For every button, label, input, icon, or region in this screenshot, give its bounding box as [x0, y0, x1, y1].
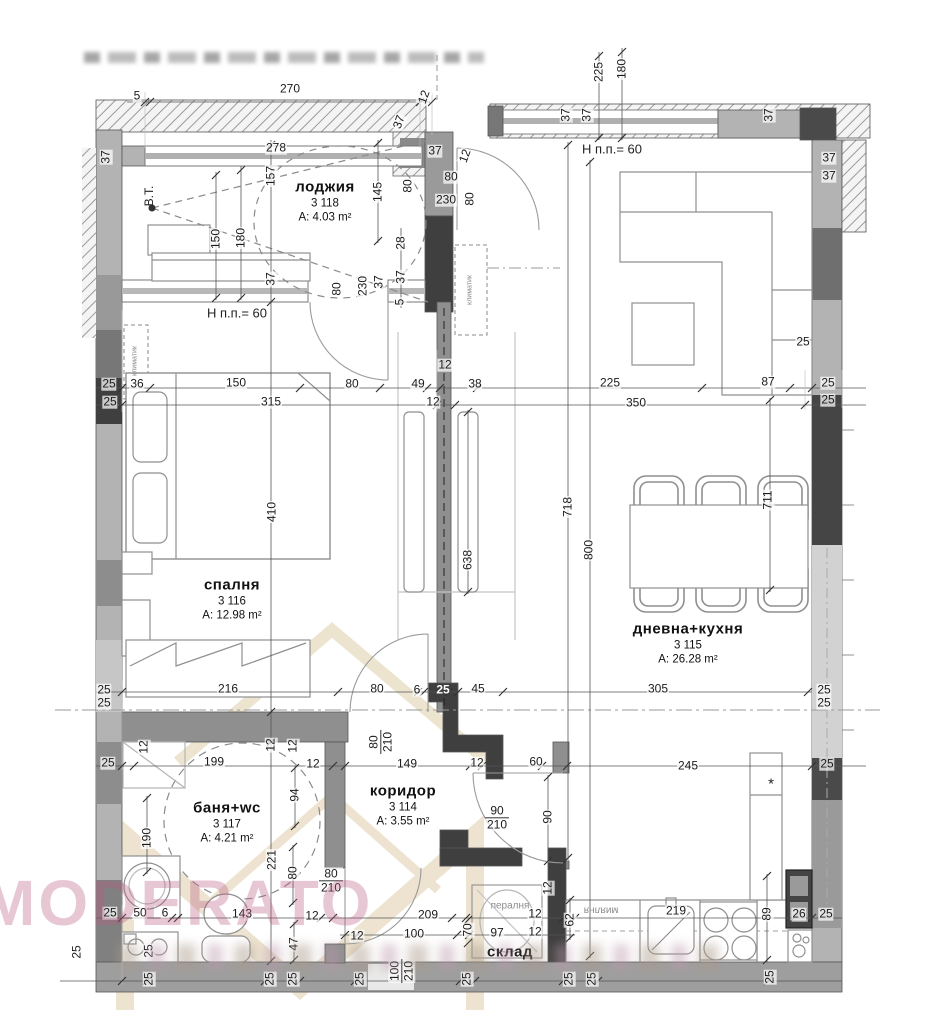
dining-set [630, 476, 808, 612]
masonry-ticks [842, 430, 854, 730]
floorplan: 5270122251803715727837371280802308028375… [0, 0, 925, 1024]
kitchen-counter [566, 753, 812, 962]
built-in-closet [398, 332, 515, 640]
blurred-watermark-line [118, 944, 718, 970]
tall-cabinet [750, 753, 782, 900]
bed [126, 373, 330, 559]
coffee-table [632, 303, 694, 365]
door-living-loggia [457, 148, 539, 230]
dining-table [630, 505, 808, 588]
door-loggia-bedroom [310, 302, 388, 380]
wardrobe [126, 640, 310, 697]
loggia-bench [148, 225, 310, 281]
vt-point [149, 205, 156, 212]
nightstand [122, 552, 152, 574]
watermark-moderato: MODERATO [0, 866, 542, 940]
